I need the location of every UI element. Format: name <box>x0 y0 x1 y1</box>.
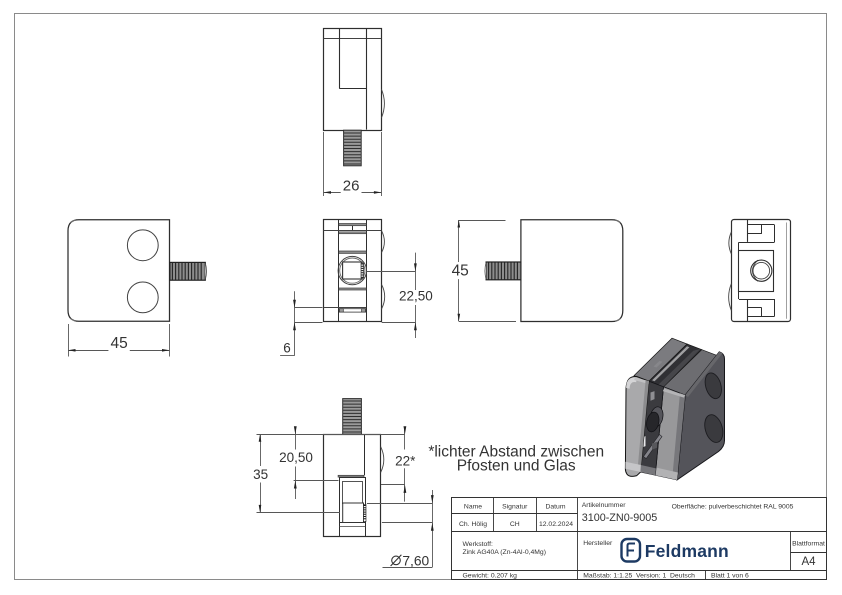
svg-text:Blattformat: Blattformat <box>792 540 825 547</box>
svg-text:3100-ZN0-9005: 3100-ZN0-9005 <box>582 512 658 524</box>
svg-text:Deutsch: Deutsch <box>670 572 695 579</box>
svg-text:Feldmann: Feldmann <box>645 541 729 561</box>
svg-text:Artikelnummer: Artikelnummer <box>582 502 627 509</box>
svg-text:Blatt 1 von 6: Blatt 1 von 6 <box>711 572 749 579</box>
svg-text:7,60: 7,60 <box>402 553 429 568</box>
svg-text:Zink AG40A (Zn-4Al-0,4Mg): Zink AG40A (Zn-4Al-0,4Mg) <box>463 549 546 556</box>
svg-text:22,50: 22,50 <box>399 289 433 304</box>
svg-text:Signatur: Signatur <box>502 503 528 510</box>
svg-text:Ch. Hölig: Ch. Hölig <box>459 521 487 528</box>
svg-text:CH: CH <box>510 521 520 528</box>
svg-text:Hersteller: Hersteller <box>583 540 613 547</box>
svg-text:45: 45 <box>452 263 469 280</box>
svg-text:12.02.2024: 12.02.2024 <box>539 521 573 528</box>
svg-text:Maßstab: 1:1.25: Maßstab: 1:1.25 <box>583 572 632 579</box>
svg-text:A4: A4 <box>801 556 816 568</box>
svg-text:Name: Name <box>464 503 482 510</box>
svg-text:20,50: 20,50 <box>279 450 313 465</box>
svg-text:22*: 22* <box>395 453 416 468</box>
svg-text:6: 6 <box>283 340 291 355</box>
svg-text:Datum: Datum <box>545 503 565 510</box>
svg-text:45: 45 <box>110 335 127 352</box>
svg-text:Oberfläche: pulverbeschichtet: Oberfläche: pulverbeschichtet RAL 9005 <box>672 503 794 510</box>
svg-text:26: 26 <box>343 177 360 194</box>
svg-text:Werkstoff:: Werkstoff: <box>463 541 493 548</box>
svg-text:Version: 1: Version: 1 <box>636 572 666 579</box>
svg-text:Pfosten und Glas: Pfosten und Glas <box>457 458 576 475</box>
svg-text:35: 35 <box>253 467 268 482</box>
svg-text:Gewicht: 0.207 kg: Gewicht: 0.207 kg <box>463 572 518 579</box>
